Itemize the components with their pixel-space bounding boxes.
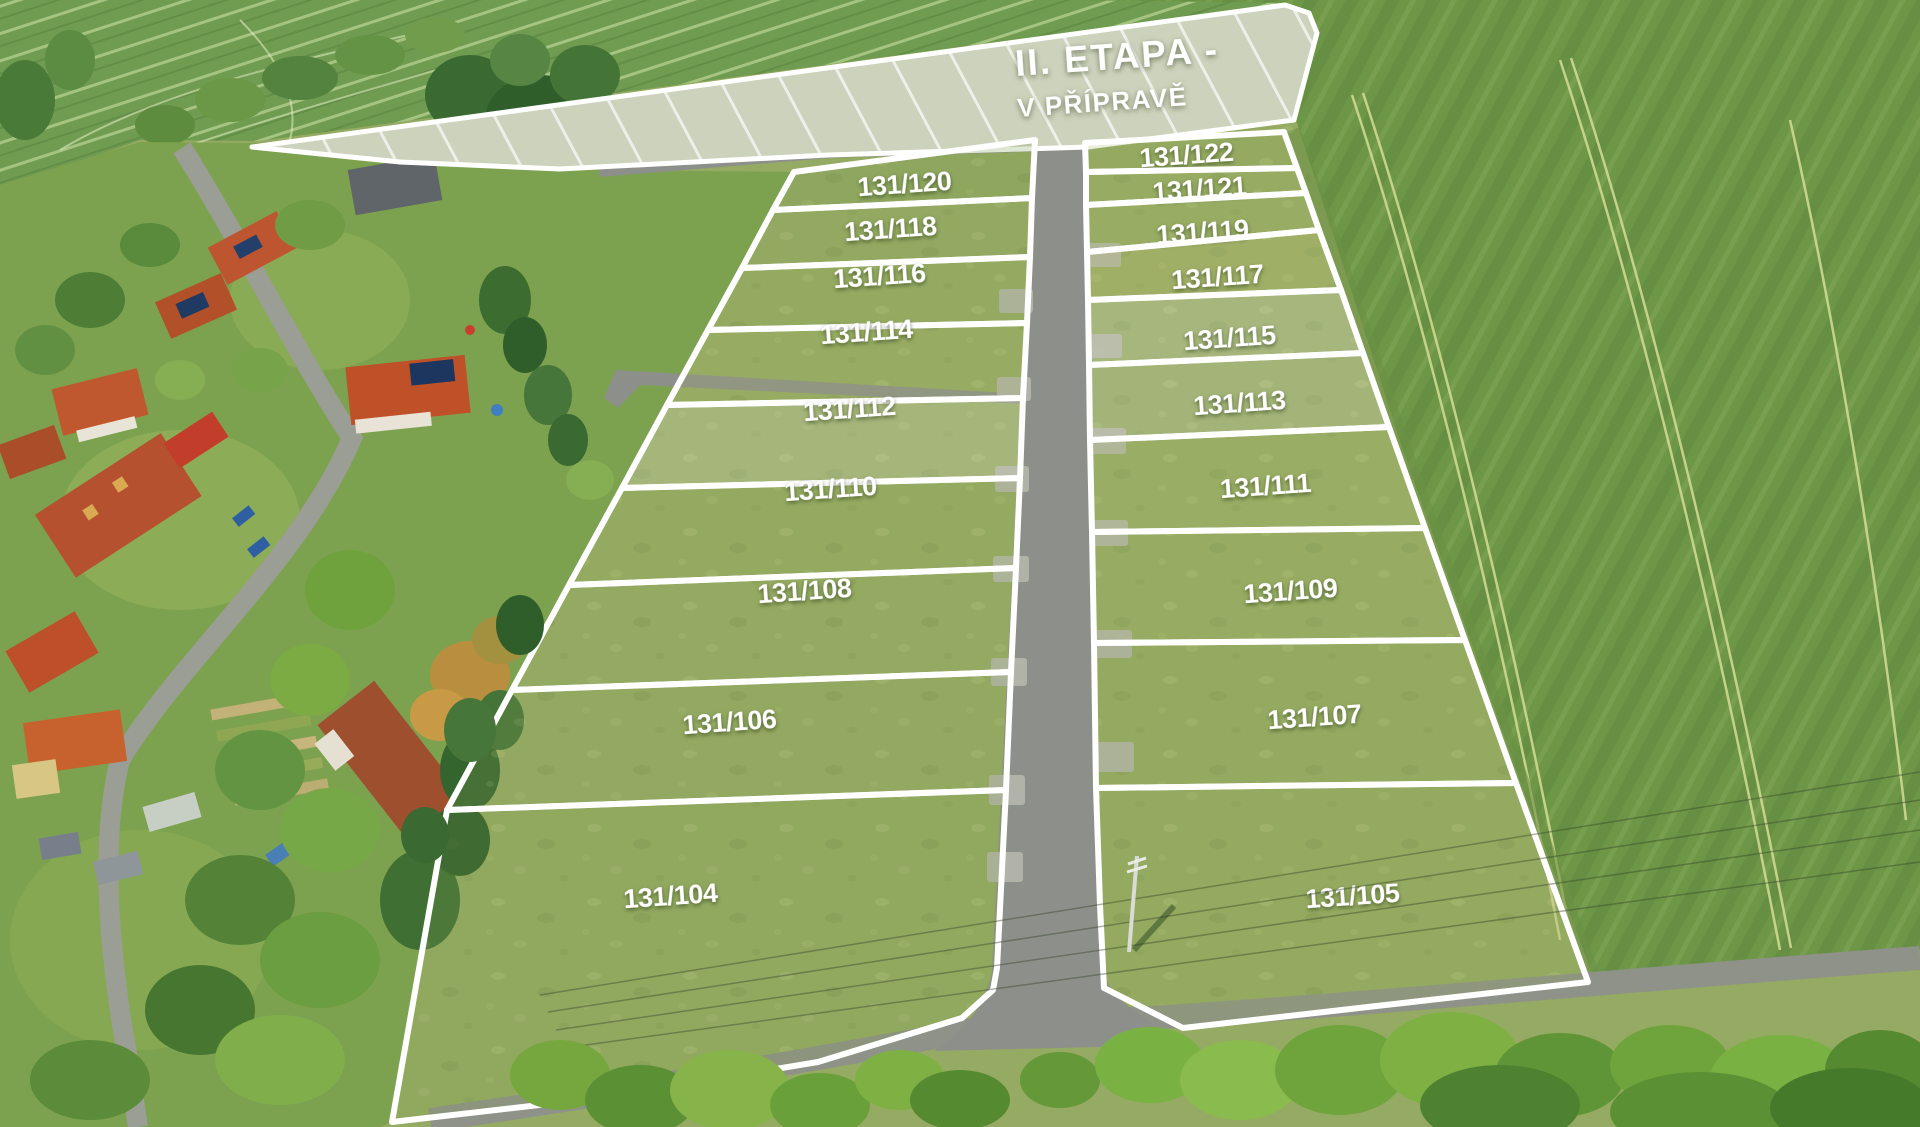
aerial-plot-map: 131/120131/118131/116131/114131/112131/1… (0, 0, 1920, 1127)
plot-131-109: 131/109 (1092, 528, 1465, 643)
plot-131-105: 131/105 (1096, 783, 1588, 1028)
plot-131-106: 131/106 (447, 672, 1011, 810)
house-yellow-wall (12, 759, 60, 799)
pool (491, 404, 503, 416)
solar-array (409, 359, 455, 385)
plot-131-114: 131/114 (667, 314, 1027, 405)
map-canvas: 131/120131/118131/116131/114131/112131/1… (0, 0, 1920, 1127)
plot-131-112: 131/112 (622, 391, 1023, 488)
plot-131-107: 131/107 (1094, 640, 1516, 788)
plot-label-131-111: 131/111 (1219, 468, 1312, 504)
plot-131-111: 131/111 (1090, 427, 1425, 532)
plot-boundary-131-106 (447, 672, 1011, 810)
playground (465, 325, 475, 335)
